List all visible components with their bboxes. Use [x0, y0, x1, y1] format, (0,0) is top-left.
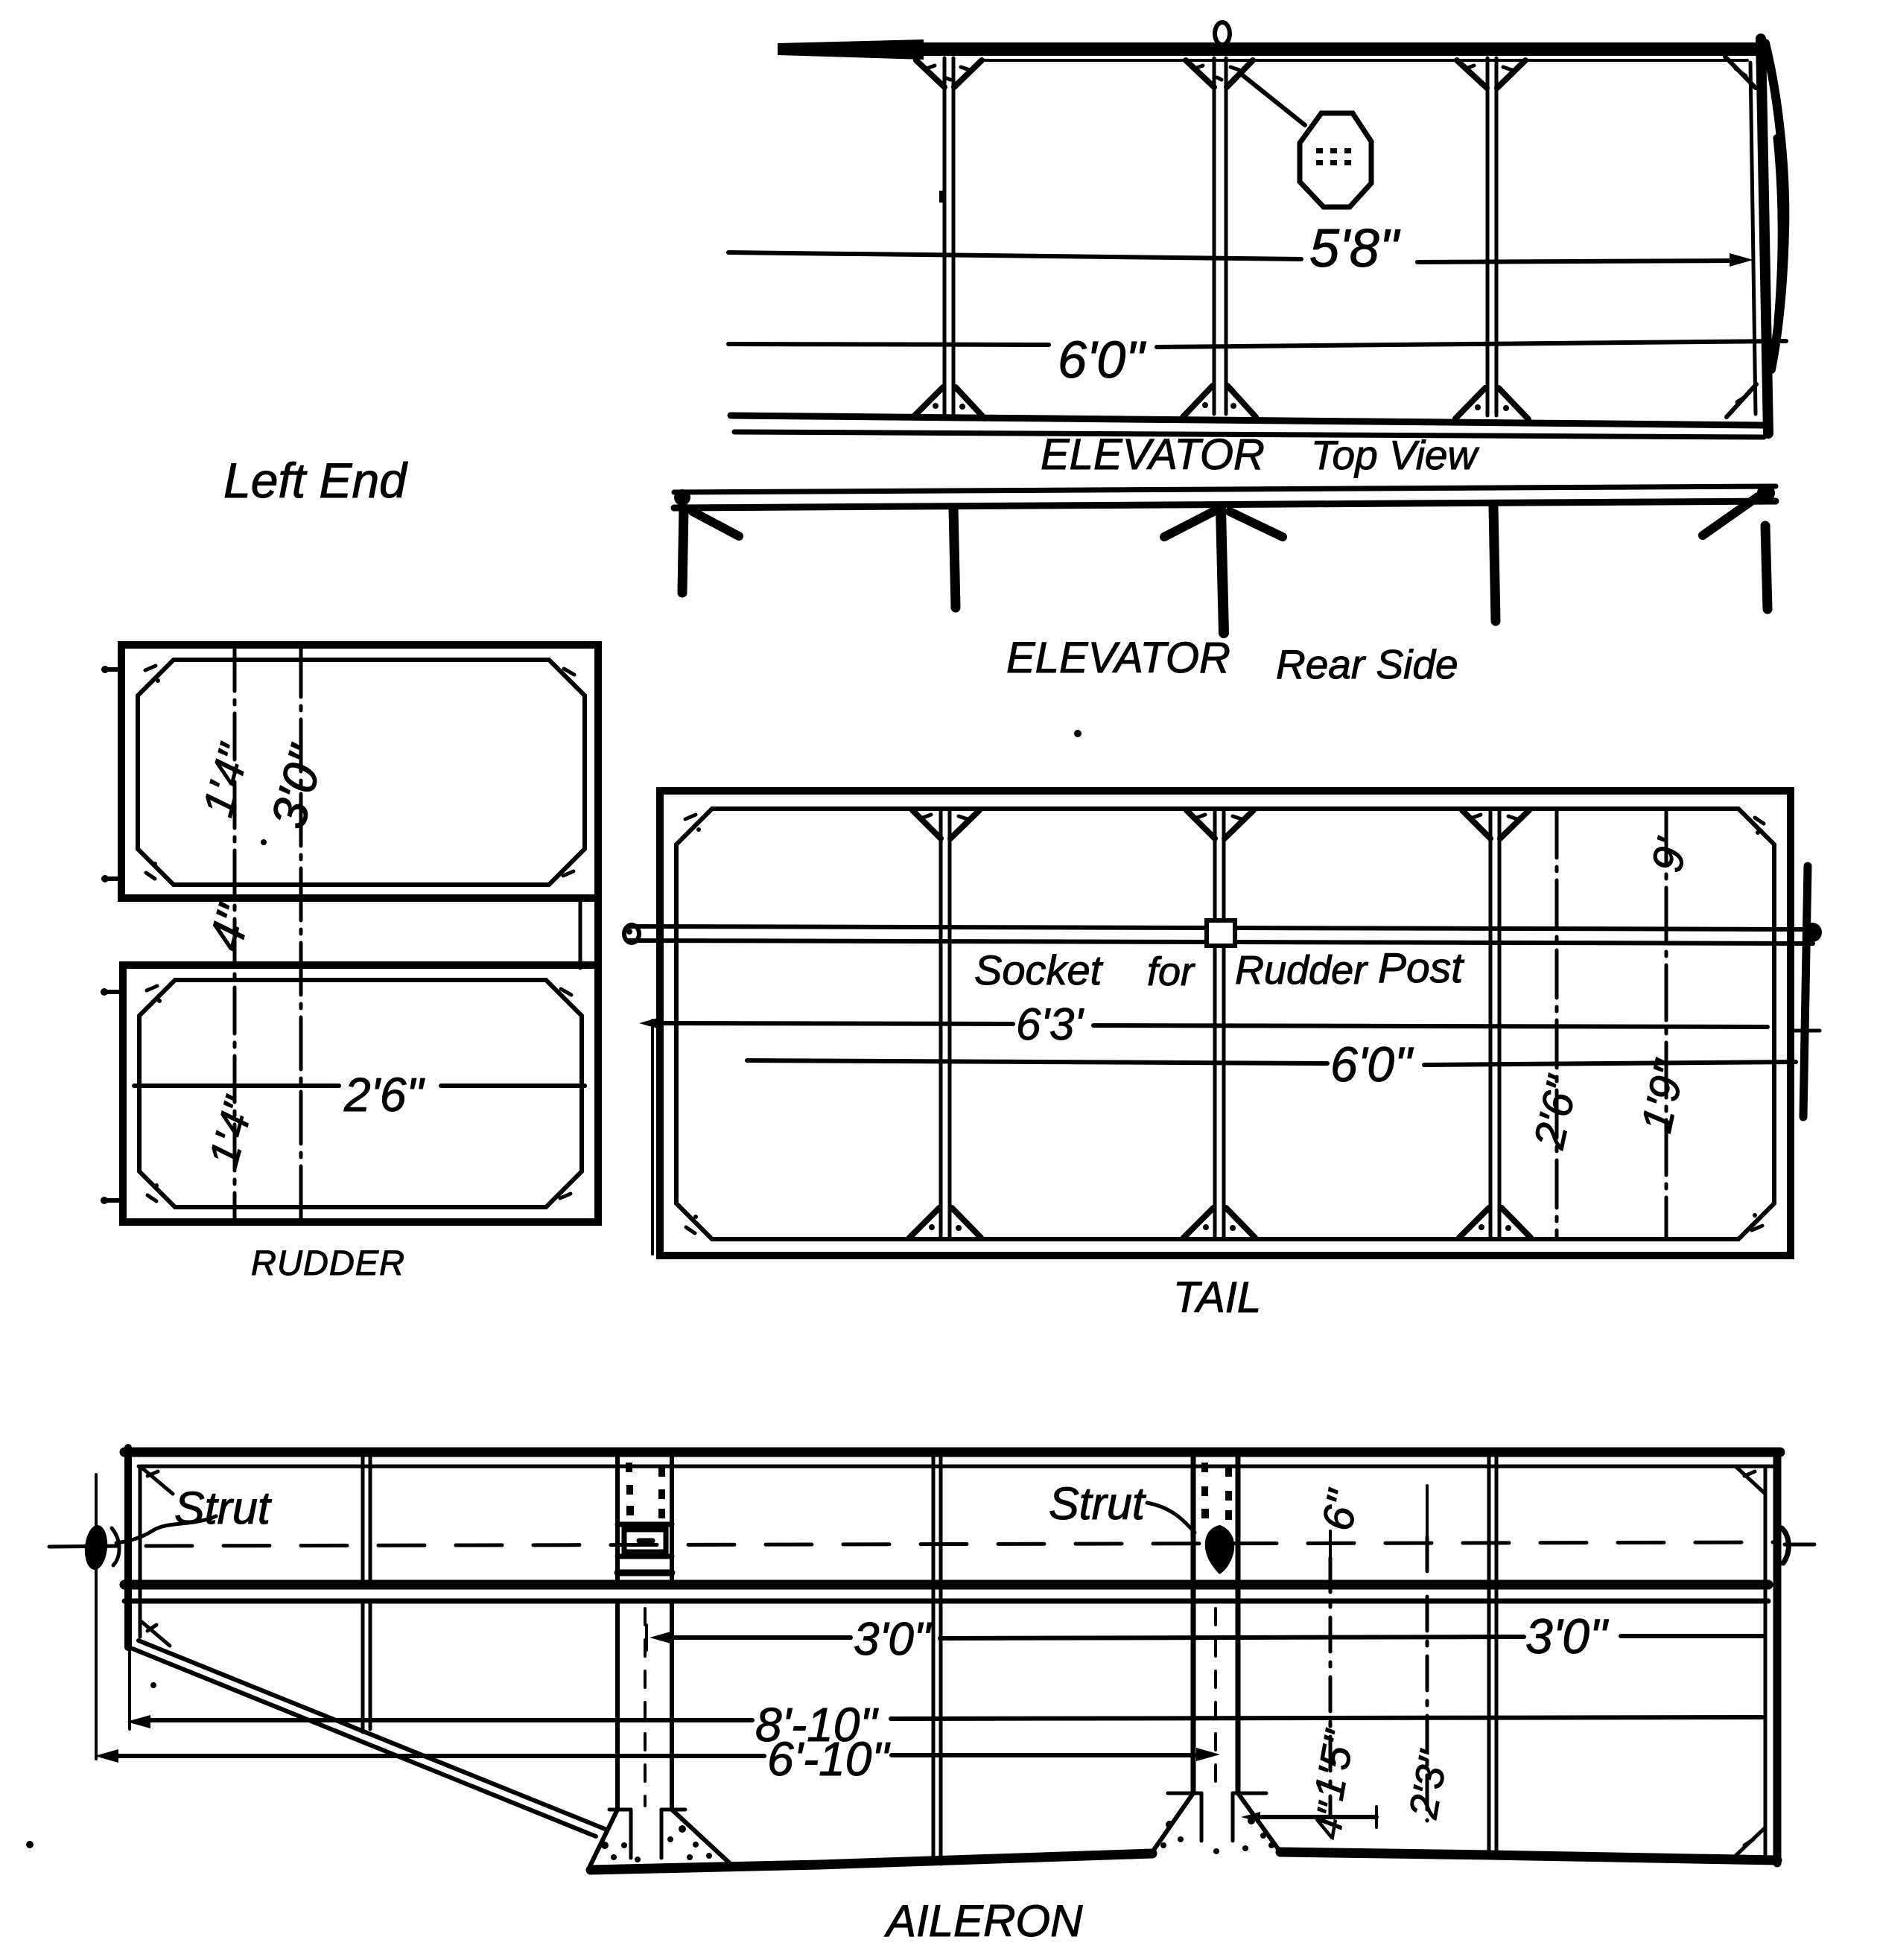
svg-text:4": 4" [198, 897, 261, 955]
svg-text:5'8": 5'8" [1309, 219, 1401, 279]
svg-text:6'0": 6'0" [1330, 1037, 1414, 1092]
svg-text:1'4": 1'4" [194, 738, 259, 821]
svg-text:1'5": 1'5" [1305, 1726, 1364, 1804]
svg-text:6'3': 6'3' [1016, 999, 1084, 1049]
svg-text:6'-10": 6'-10" [767, 1732, 891, 1786]
svg-text:ELEVATOR: ELEVATOR [1041, 430, 1265, 479]
svg-text:2'6": 2'6" [1525, 1071, 1587, 1154]
svg-text:Strut: Strut [1049, 1478, 1147, 1529]
svg-text:TAIL: TAIL [1173, 1273, 1261, 1322]
svg-text:Top View: Top View [1311, 432, 1480, 478]
svg-text:3'0": 3'0" [1525, 1609, 1609, 1664]
svg-text:Rudder: Rudder [1235, 948, 1368, 993]
svg-text:6": 6" [1313, 1486, 1368, 1535]
svg-text:RUDDER: RUDDER [251, 1243, 405, 1282]
svg-text:3'0": 3'0" [260, 739, 334, 833]
svg-text:Rear Side: Rear Side [1276, 641, 1458, 687]
svg-text:ELEVATOR: ELEVATOR [1006, 634, 1230, 682]
svg-text:1'9": 1'9" [1632, 1055, 1695, 1137]
svg-text:Post: Post [1378, 944, 1464, 992]
svg-text:2'3": 2'3" [1401, 1746, 1457, 1822]
svg-text:4": 4" [1306, 1798, 1355, 1842]
svg-text:Left End: Left End [223, 453, 408, 508]
svg-text:2'6": 2'6" [343, 1068, 425, 1121]
svg-text:for: for [1147, 949, 1195, 994]
svg-text:1'4": 1'4" [200, 1091, 263, 1171]
svg-text:Socket: Socket [974, 946, 1104, 993]
svg-text:3'0": 3'0" [854, 1614, 933, 1665]
svg-text:AILERON: AILERON [884, 1896, 1083, 1946]
svg-text:9': 9' [1642, 833, 1697, 876]
svg-text:6'0": 6'0" [1058, 331, 1146, 389]
svg-text:Strut: Strut [174, 1483, 273, 1533]
